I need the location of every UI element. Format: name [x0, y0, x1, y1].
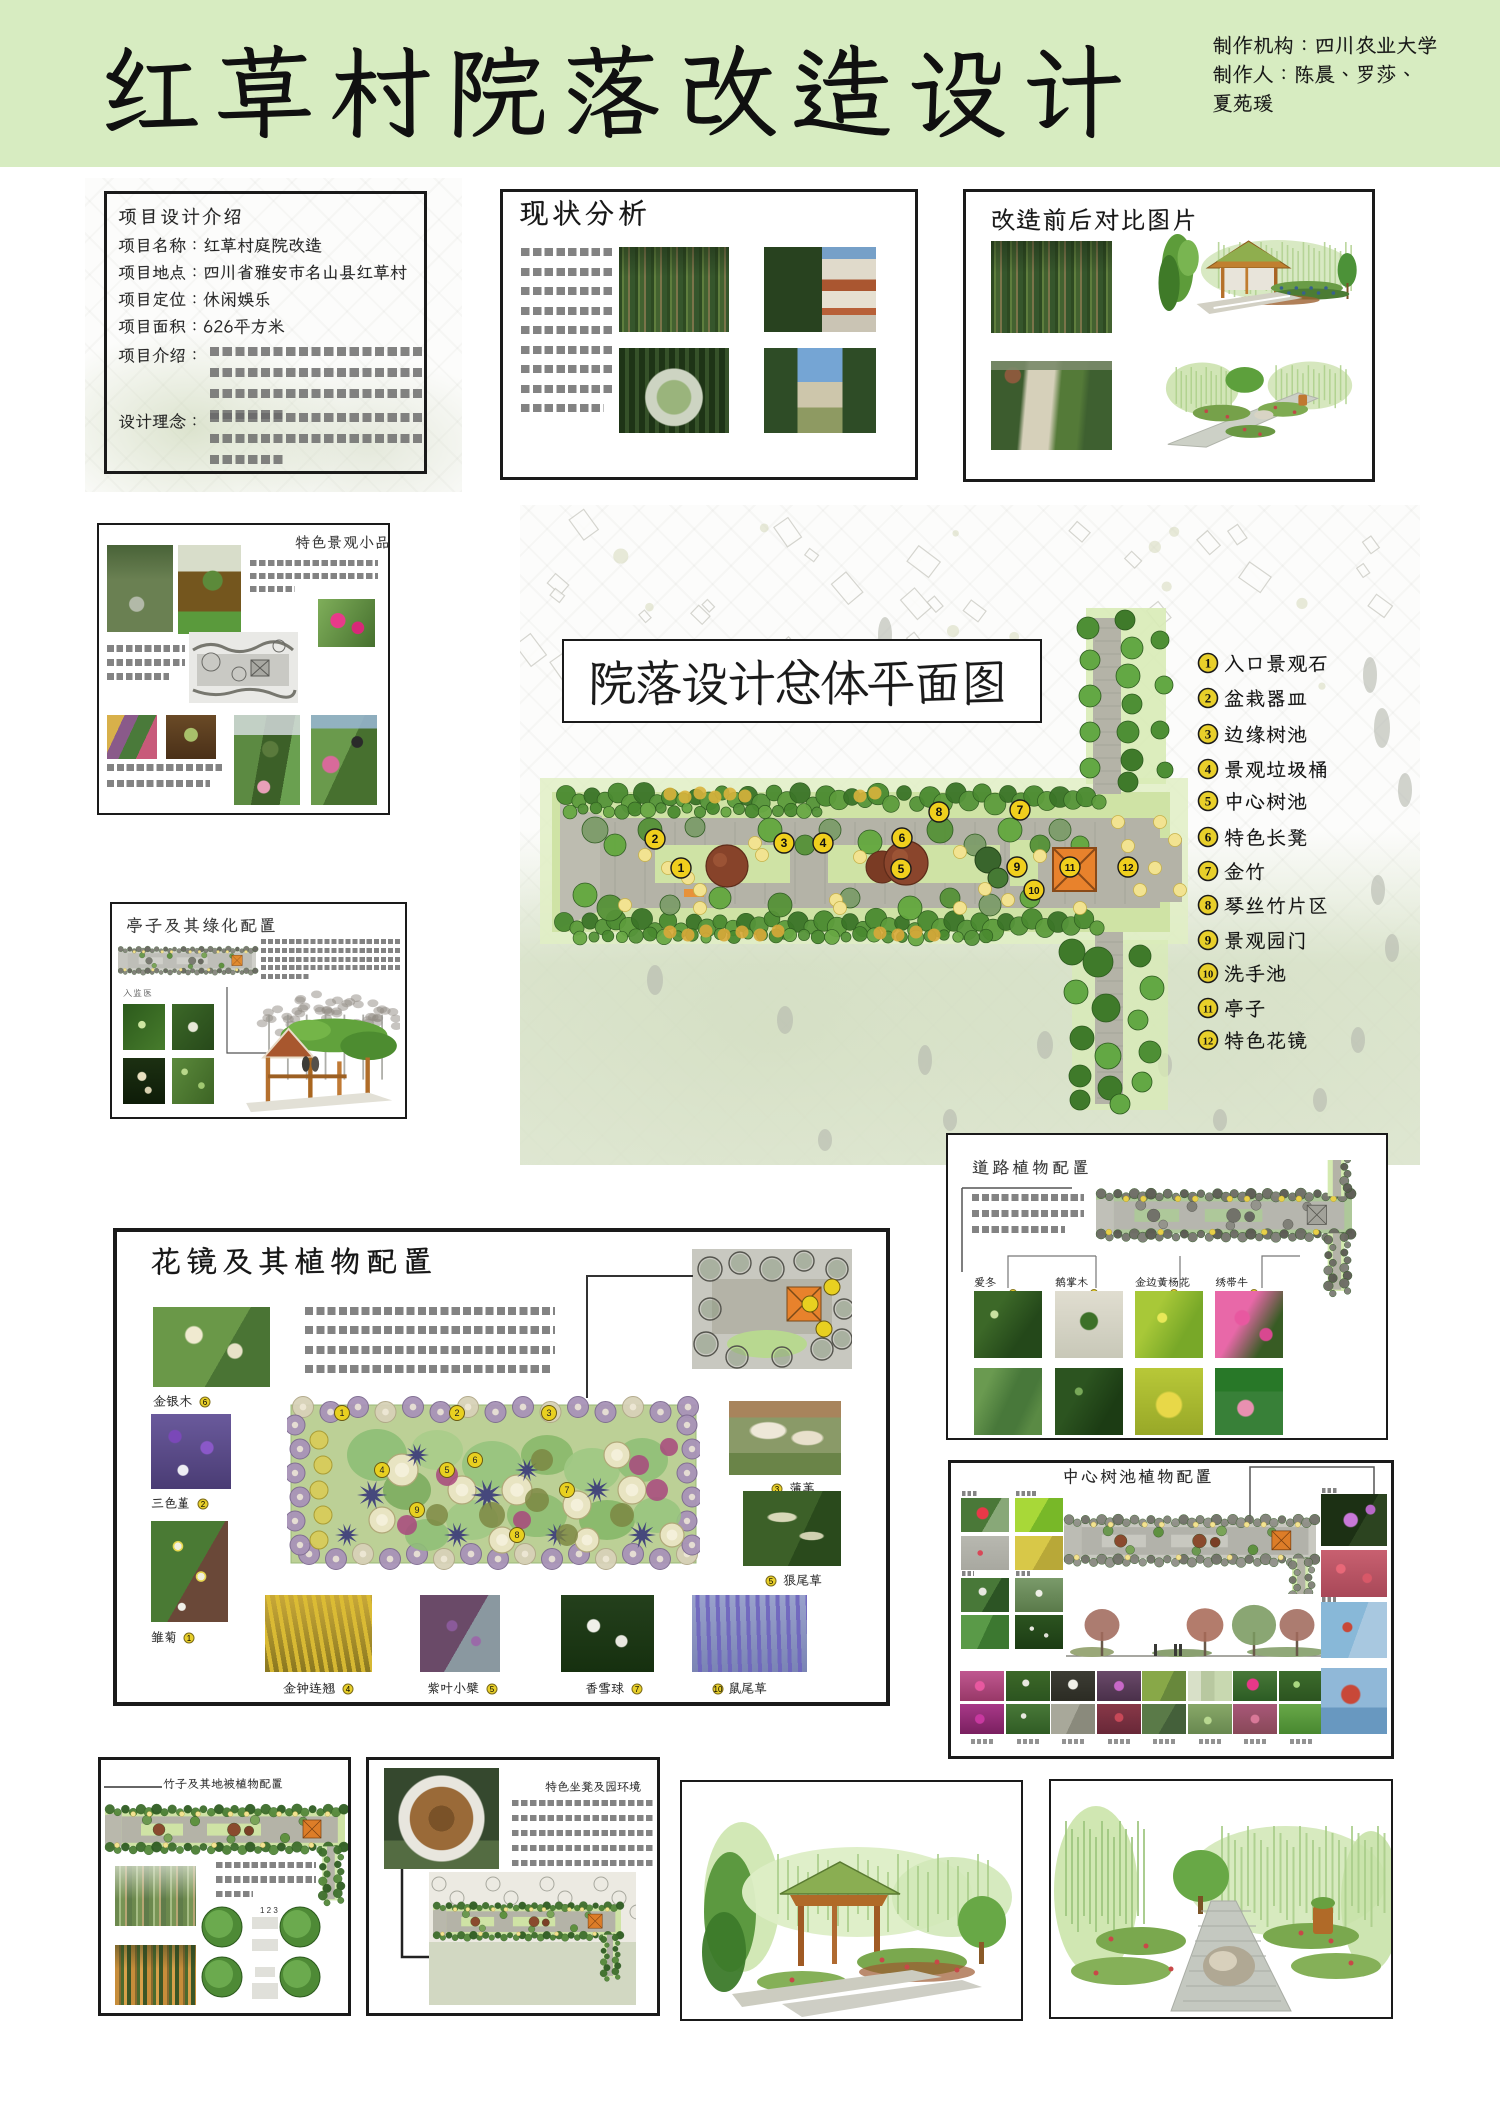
svg-text:3: 3 — [781, 836, 788, 850]
svg-text:8: 8 — [514, 1530, 519, 1540]
svg-text:8: 8 — [1205, 898, 1212, 913]
svg-text:2: 2 — [454, 1408, 459, 1418]
svg-text:9: 9 — [414, 1505, 419, 1515]
svg-text:6: 6 — [472, 1455, 477, 1465]
svg-text:9: 9 — [1205, 933, 1212, 948]
svg-text:7: 7 — [635, 1685, 640, 1694]
svg-text:10: 10 — [1203, 970, 1214, 981]
svg-text:5: 5 — [444, 1465, 449, 1475]
svg-text:4: 4 — [379, 1465, 384, 1475]
svg-text:8: 8 — [936, 805, 943, 819]
svg-text:1 2 3: 1 2 3 — [260, 1906, 278, 1915]
svg-text:1: 1 — [1205, 656, 1212, 671]
svg-text:7: 7 — [1205, 864, 1212, 879]
svg-text:5: 5 — [490, 1685, 495, 1694]
svg-text:4: 4 — [1205, 762, 1212, 777]
svg-text:1: 1 — [339, 1408, 344, 1418]
svg-text:3: 3 — [1205, 727, 1212, 742]
svg-text:11: 11 — [1065, 863, 1076, 874]
svg-text:1: 1 — [678, 861, 685, 875]
svg-text:6: 6 — [1205, 830, 1212, 845]
svg-text:11: 11 — [1203, 1005, 1213, 1016]
svg-text:6: 6 — [899, 831, 906, 845]
svg-text:5: 5 — [898, 862, 905, 876]
svg-text:6: 6 — [203, 1398, 208, 1407]
svg-text:5: 5 — [769, 1577, 774, 1586]
svg-text:3: 3 — [546, 1408, 551, 1418]
svg-text:2: 2 — [201, 1500, 206, 1509]
svg-text:9: 9 — [1014, 860, 1021, 874]
svg-text:5: 5 — [1205, 794, 1212, 809]
svg-text:7: 7 — [564, 1485, 569, 1495]
svg-text:10: 10 — [714, 1685, 723, 1694]
svg-text:10: 10 — [1028, 886, 1040, 897]
svg-text:4: 4 — [346, 1685, 351, 1694]
svg-text:12: 12 — [1203, 1037, 1214, 1048]
svg-text:12: 12 — [1122, 863, 1134, 874]
svg-text:4: 4 — [820, 836, 827, 850]
svg-text:2: 2 — [652, 832, 659, 846]
svg-text:2: 2 — [1205, 691, 1212, 706]
svg-text:7: 7 — [1017, 803, 1024, 817]
svg-text:1: 1 — [187, 1634, 192, 1643]
